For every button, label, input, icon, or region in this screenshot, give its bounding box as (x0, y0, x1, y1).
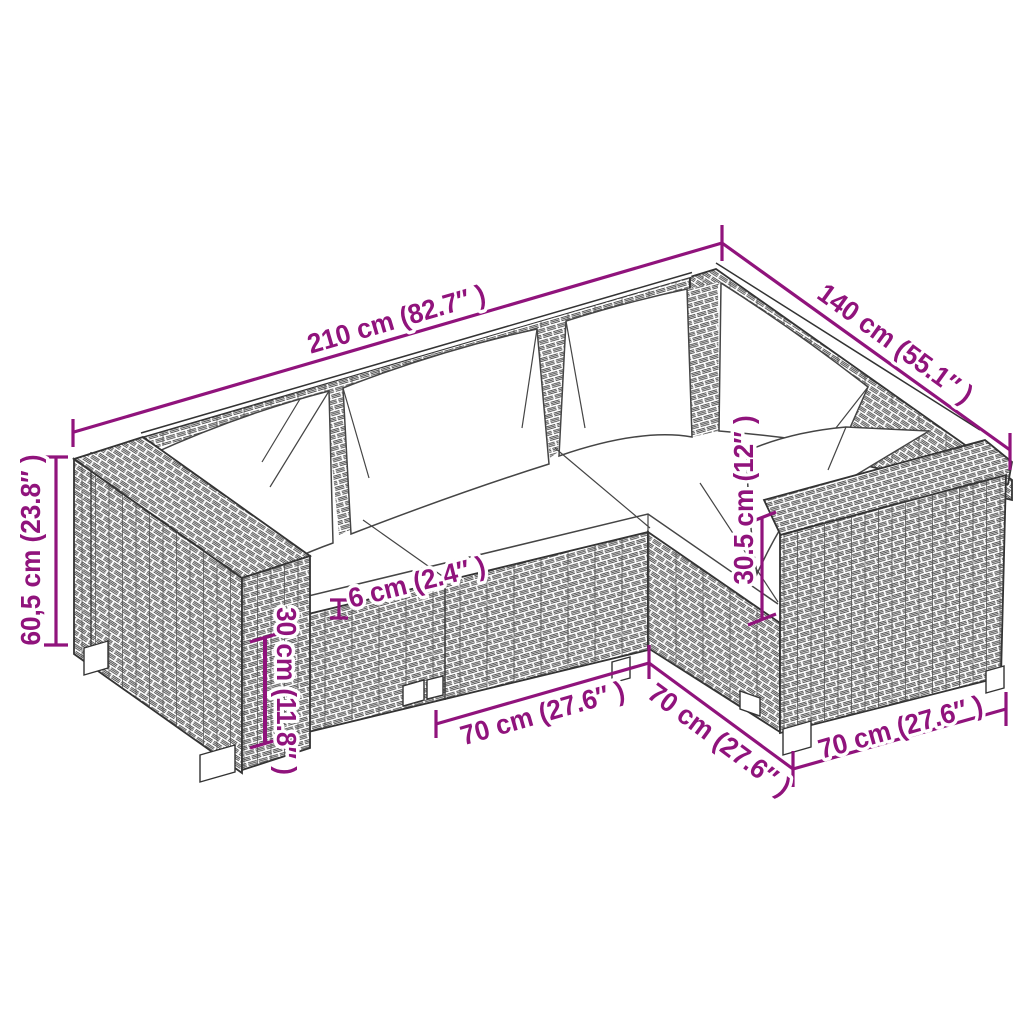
svg-text:30 cm (11.8″ ): 30 cm (11.8″ ) (271, 607, 302, 775)
svg-text:60,5 cm (23.8″ ): 60,5 cm (23.8″ ) (15, 454, 46, 645)
svg-text:30.5 cm (12″ ): 30.5 cm (12″ ) (728, 415, 759, 584)
